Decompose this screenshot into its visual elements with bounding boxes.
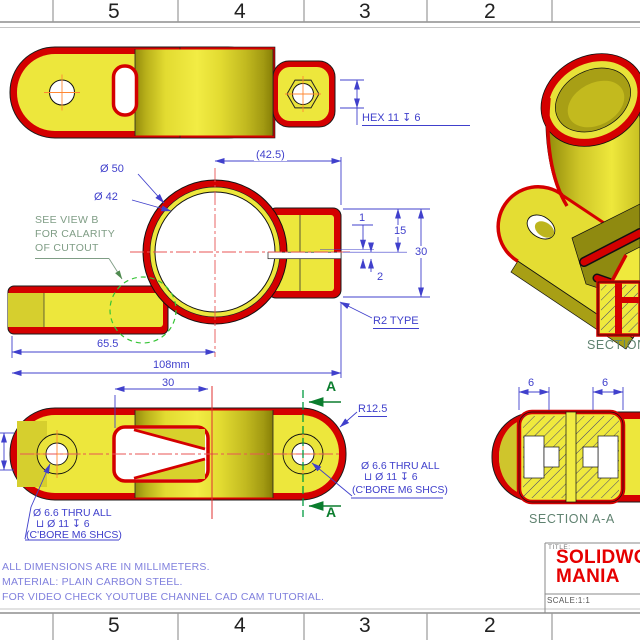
section-a-view-drawing bbox=[492, 387, 640, 502]
zone-label-bottom-3: 3 bbox=[359, 614, 371, 637]
drawing-graphics bbox=[0, 0, 640, 640]
general-note-line2: MATERIAL: PLAIN CARBON STEEL. bbox=[2, 577, 183, 589]
section-a-label: SECTION A-A bbox=[529, 513, 615, 527]
dim-label-dia50: Ø 50 bbox=[100, 163, 124, 175]
zone-label-top-4: 4 bbox=[234, 0, 246, 23]
section-a-dim-right: 6 bbox=[602, 377, 608, 389]
dim-label-2: 2 bbox=[377, 271, 383, 283]
top-view-drawing bbox=[10, 47, 364, 138]
title-block-scale: SCALE:1:1 bbox=[547, 597, 590, 606]
drawing-sheet: 5 4 3 2 5 4 3 2 HEX 11 ↧ 6 (42.5) Ø 50 Ø… bbox=[0, 0, 640, 640]
dim-label-65-5: 65.5 bbox=[97, 338, 118, 350]
section-b-label: SECTION bbox=[587, 339, 640, 353]
front-view-drawing bbox=[8, 157, 430, 378]
dim-label-30-bottom: 30 bbox=[162, 377, 174, 389]
cbore-callout-left-line3: (C'BORE M6 SHCS) bbox=[26, 530, 122, 542]
cbore-callout-right-line2: ⊔ Ø 11 ↧ 6 bbox=[364, 472, 418, 484]
zone-label-bottom-5: 5 bbox=[108, 614, 120, 637]
view-b-note-line2: FOR CALARITY bbox=[35, 229, 115, 241]
section-a-dimension-lines bbox=[519, 387, 623, 410]
zone-label-top-5: 5 bbox=[108, 0, 120, 23]
zone-label-top-3: 3 bbox=[359, 0, 371, 23]
dim-label-42-5: (42.5) bbox=[254, 149, 287, 161]
view-b-note-line1: SEE VIEW B bbox=[35, 215, 99, 227]
general-note-line3: FOR VIDEO CHECK YOUTUBE CHANNEL CAD CAM … bbox=[2, 592, 324, 604]
radius-note-label: R12.5 bbox=[358, 403, 387, 417]
view-b-note-line3: OF CUTOUT bbox=[35, 243, 99, 255]
dim-label-15: 15 bbox=[392, 225, 408, 237]
hex-callout-label: HEX 11 ↧ 6 bbox=[362, 112, 470, 126]
dim-label-dia42: Ø 42 bbox=[94, 191, 118, 203]
dim-label-108: 108mm bbox=[153, 359, 190, 371]
dim-label-1: 1 bbox=[357, 212, 367, 224]
section-letter-bottom: A bbox=[326, 505, 336, 520]
zone-label-bottom-2: 2 bbox=[484, 614, 496, 637]
section-a-dim-left: 6 bbox=[528, 377, 534, 389]
section-letter-top: A bbox=[326, 379, 336, 394]
fillet-note-label: R2 TYPE bbox=[373, 315, 419, 329]
title-block-brand-line2: MANIA bbox=[556, 567, 620, 588]
hex-dimension-lines bbox=[340, 80, 364, 125]
zone-label-bottom-4: 4 bbox=[234, 614, 246, 637]
general-note-line1: ALL DIMENSIONS ARE IN MILLIMETERS. bbox=[2, 562, 210, 574]
zone-label-top-2: 2 bbox=[484, 0, 496, 23]
cbore-callout-right-line3: (C'BORE M6 SHCS) bbox=[352, 485, 448, 497]
dim-label-30-front: 30 bbox=[413, 246, 429, 258]
